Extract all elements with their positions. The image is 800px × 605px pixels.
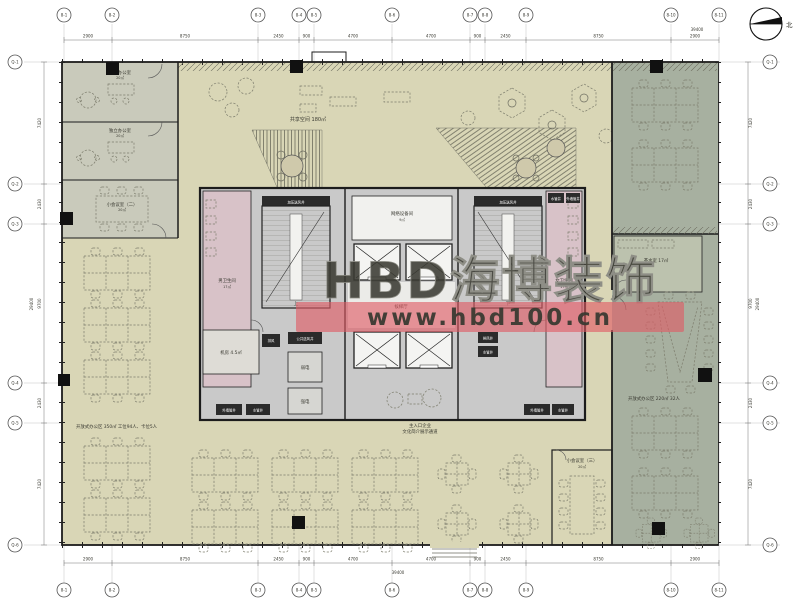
grid-axis-label: 8-6 [389,13,396,18]
dimension-label: 2900 [83,557,94,562]
north-label: 北 [786,21,793,29]
svg-text:20㎡: 20㎡ [118,207,126,212]
mens-restroom-label: 男卫生间 [218,277,236,284]
grid-axis-label: Q-5 [766,421,774,426]
grid-axis-label: Q-1 [11,60,19,65]
elevator [406,332,452,368]
dimension-label: 2450 [273,34,284,39]
grid-axis-label: 8-2 [109,13,116,18]
entrance-label-2: 文化简介展示通道 [402,428,438,435]
grid-axis-label: 8-11 [714,588,724,593]
grid-axis-label: 8-8 [482,13,489,18]
shared-space-label: 共享空间 180㎡ [290,116,326,123]
grid-axis-label: 8-1 [61,13,68,18]
svg-text:水管井: 水管井 [551,196,562,201]
svg-text:17㎡: 17㎡ [223,284,231,289]
dimension-label: 2430 [748,198,753,209]
grid-axis-label: Q-5 [11,421,19,426]
grid-axis-label: 8-6 [389,588,396,593]
dimension-label: 2450 [500,34,511,39]
left-rooms: 独立办公室 20㎡ 独立办公室 20㎡ 小会议室（二） 20㎡ [62,62,178,238]
svg-text:加压送风井: 加压送风井 [288,199,306,204]
main-entrance [430,542,479,557]
svg-text:公共送风井: 公共送风井 [297,336,315,341]
dimension-label: 2430 [37,397,42,408]
dimension-label: 2900 [690,557,701,562]
grid-axis-label: 8-7 [467,13,474,18]
meeting2-label: 小会议室（二） [107,201,138,208]
grid-axis-label: Q-2 [11,182,19,187]
dimension-label: 900 [303,34,311,39]
dimension-label: 8750 [593,557,604,562]
grid-axis-label: 8-5 [311,588,318,593]
top-balcony [312,52,346,62]
dimension-label: 8750 [180,557,191,562]
north-arrow: 北 [750,8,793,40]
grid-axis-label: 8-9 [523,13,530,18]
dimension-label: 2430 [748,397,753,408]
grid-axis-label: 8-5 [311,13,318,18]
svg-text:网络设备间: 网络设备间 [391,210,413,217]
grid-axis-label: 8-2 [109,588,116,593]
svg-text:水管井: 水管井 [253,408,264,413]
dimension-label: 2450 [500,557,511,562]
dimension-label: 9700 [37,298,42,309]
grid-axis-label: 8-10 [666,13,676,18]
dimension-total: 29400 [29,297,34,310]
grid-axis-label: Q-6 [766,543,774,548]
grid-axis-label: 8-10 [666,588,676,593]
dimension-total: 29400 [755,297,760,310]
grid-axis-label: Q-4 [766,381,774,386]
meeting3-label: 小会议室（三） [567,457,598,464]
svg-text:外墙管井: 外墙管井 [530,408,544,413]
dimension-label: 900 [474,34,482,39]
grid-axis-label: 8-3 [255,588,262,593]
dimension-label: 7420 [748,478,753,489]
dimension-label: 7420 [748,117,753,128]
dimension-label: 4700 [348,557,359,562]
svg-text:排风: 排风 [268,338,275,343]
entrance-label-1: 主入口企业 [409,422,432,429]
svg-text:水管井: 水管井 [558,408,569,413]
watermark-brand: HBD海博装饰 [322,252,657,310]
dimension-label: 2900 [690,34,701,39]
grid-axis-label: 8-4 [296,13,303,18]
grid-axis-label: Q-6 [11,543,19,548]
grid-axis-label: 8-4 [296,588,303,593]
svg-text:20㎡: 20㎡ [578,464,586,469]
dimension-label: 8750 [180,34,191,39]
svg-text:加压送风井: 加压送风井 [500,199,518,204]
svg-text:强电: 强电 [301,398,310,405]
svg-text:机房 4.5㎡: 机房 4.5㎡ [220,349,242,356]
dimension-label: 2430 [37,198,42,209]
grid-axis-label: 8-9 [523,588,530,593]
dimension-label: 2900 [83,34,94,39]
floor-plan-page: 8-18-18-28-28-38-38-48-48-58-58-68-68-78… [0,0,800,605]
svg-text:外墙管井: 外墙管井 [566,196,580,201]
grid-axis-label: 8-8 [482,588,489,593]
dimension-label: 9700 [748,298,753,309]
dimension-label: 900 [303,557,311,562]
dimension-label: 8750 [593,34,604,39]
dimension-label: 7420 [37,117,42,128]
dimension-label: 2450 [273,557,284,562]
open-office-right-label: 开放式办公区 220㎡ 32人 [628,395,680,402]
elevator [354,332,400,368]
floor-plan-drawing: 8-18-18-28-28-38-38-48-48-58-58-68-68-78… [0,0,800,605]
svg-text:水管井: 水管井 [483,350,494,355]
dimension-label: 4700 [426,34,437,39]
svg-text:9㎡: 9㎡ [399,217,405,222]
grid-axis-label: Q-3 [11,222,19,227]
dimension-label: 7420 [37,478,42,489]
svg-text:弱电: 弱电 [301,364,310,371]
grid-axis-label: 8-1 [61,588,68,593]
dimension-total: 39400 [691,27,704,32]
watermark-url: www.hbd100.cn [367,305,613,331]
svg-text:外墙管井: 外墙管井 [222,408,236,413]
svg-text:排风井: 排风井 [483,336,494,341]
grid-axis-label: Q-1 [766,60,774,65]
watermark: HBD海博装饰 www.hbd100.cn [296,252,684,332]
grid-axis-label: Q-2 [766,182,774,187]
grid-axis-label: 8-11 [714,13,724,18]
dimension-total: 39400 [392,570,405,575]
open-office-left-label: 开放式办公区 350㎡ 工位94人、卡位5人 [76,423,158,430]
office2-label: 独立办公室 [109,127,132,134]
grid-axis-label: 8-3 [255,13,262,18]
dimension-label: 4700 [348,34,359,39]
svg-text:20㎡: 20㎡ [116,133,124,138]
grid-axis-label: Q-4 [11,381,19,386]
grid-axis-label: Q-3 [766,222,774,227]
grid-axis-label: 8-7 [467,588,474,593]
svg-text:20㎡: 20㎡ [116,75,124,80]
